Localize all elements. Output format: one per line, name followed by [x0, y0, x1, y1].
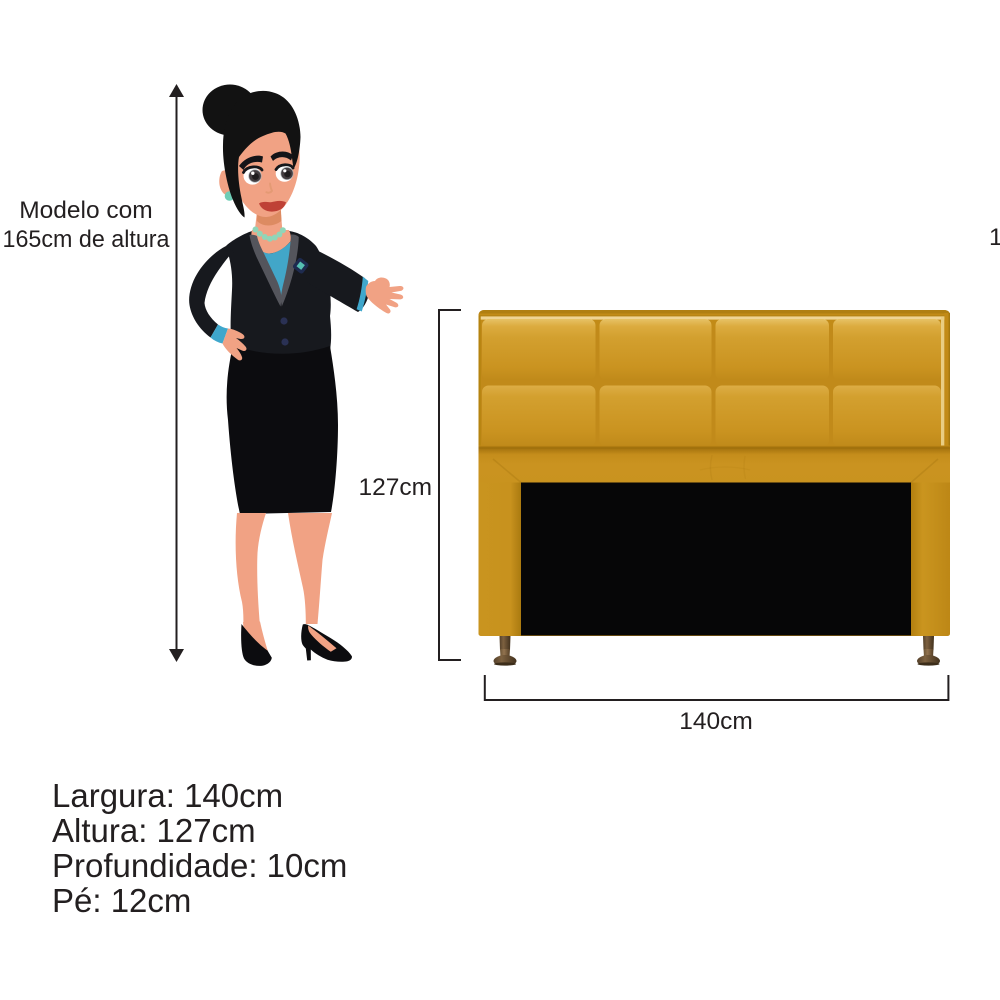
svg-text:Altura: 127cm: Altura: 127cm: [52, 812, 256, 849]
svg-text:Pé: 12cm: Pé: 12cm: [52, 882, 191, 919]
svg-text:127cm: 127cm: [358, 474, 432, 501]
svg-text:165cm de altura: 165cm de altura: [3, 226, 170, 253]
svg-text:Largura: 140cm: Largura: 140cm: [52, 777, 283, 814]
svg-text:140cm: 140cm: [679, 708, 753, 735]
svg-text:Modelo com: Modelo com: [19, 197, 152, 224]
svg-text:16: 16: [989, 224, 1000, 251]
svg-text:Profundidade: 10cm: Profundidade: 10cm: [52, 847, 347, 884]
